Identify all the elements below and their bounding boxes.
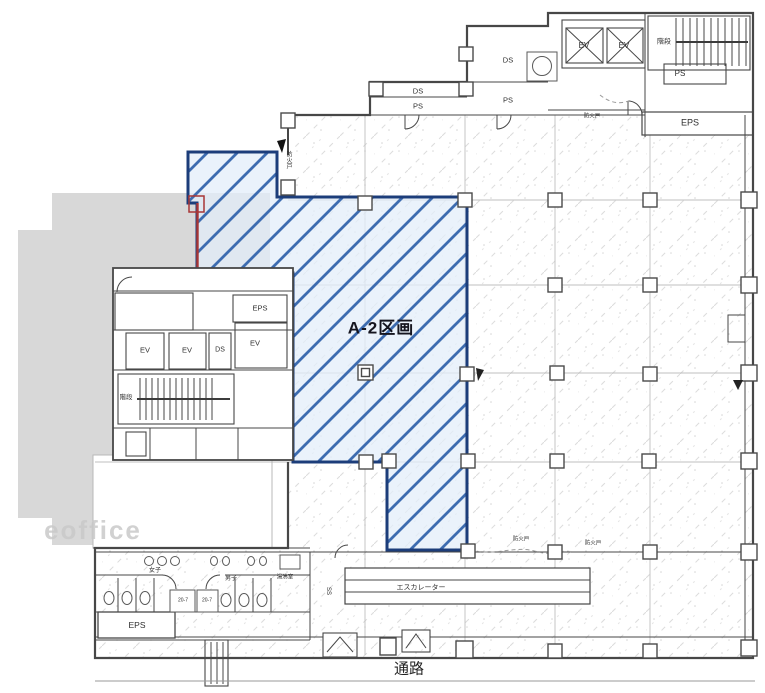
passage-label: 通路	[394, 662, 424, 677]
elevator-label: EV	[250, 339, 260, 347]
elevator-label: EV	[619, 42, 630, 50]
core-block-west	[113, 268, 293, 460]
eps-label: EPS	[128, 621, 145, 630]
elevator-label: EV	[140, 346, 150, 354]
ds-label: DS	[503, 56, 513, 64]
fire-door-label: 防火戸	[285, 151, 291, 169]
ss-mark: SS	[325, 587, 331, 595]
stall-tag: 20-7	[178, 599, 188, 604]
ds-label: DS	[413, 87, 423, 95]
ds-label: DS	[215, 347, 225, 354]
elevator-label: EV	[579, 42, 590, 50]
parcel-label: A-2区画	[348, 320, 414, 337]
stall-tag: 20-7	[202, 599, 212, 604]
floor-plan: eoffice A-2区画 通路 EV EV 階段 PS DS PS DS PS…	[0, 0, 765, 693]
fire-door-label: 防火戸	[513, 537, 530, 543]
fire-door-label: 防火戸	[584, 114, 601, 120]
ps-label: PS	[503, 96, 513, 104]
men-room-label: 男子	[225, 576, 237, 582]
elevator-label: EV	[182, 346, 192, 354]
ps-label: PS	[413, 102, 423, 110]
watermark: eoffice	[44, 517, 142, 543]
kitchen-label: 湯沸室	[277, 575, 294, 581]
floor-plan-drawing	[0, 0, 765, 693]
duct-fixture	[527, 52, 557, 81]
stairs-label: 階段	[120, 395, 133, 402]
stairs-label: 階段	[657, 39, 671, 46]
eps-label: EPS	[681, 119, 699, 128]
women-room-label: 女子	[149, 568, 161, 574]
fire-door-label: 防火戸	[585, 541, 602, 547]
ps-label: PS	[675, 70, 686, 78]
eps-label: EPS	[252, 304, 267, 312]
escalator-label: エスカレーター	[397, 585, 446, 592]
